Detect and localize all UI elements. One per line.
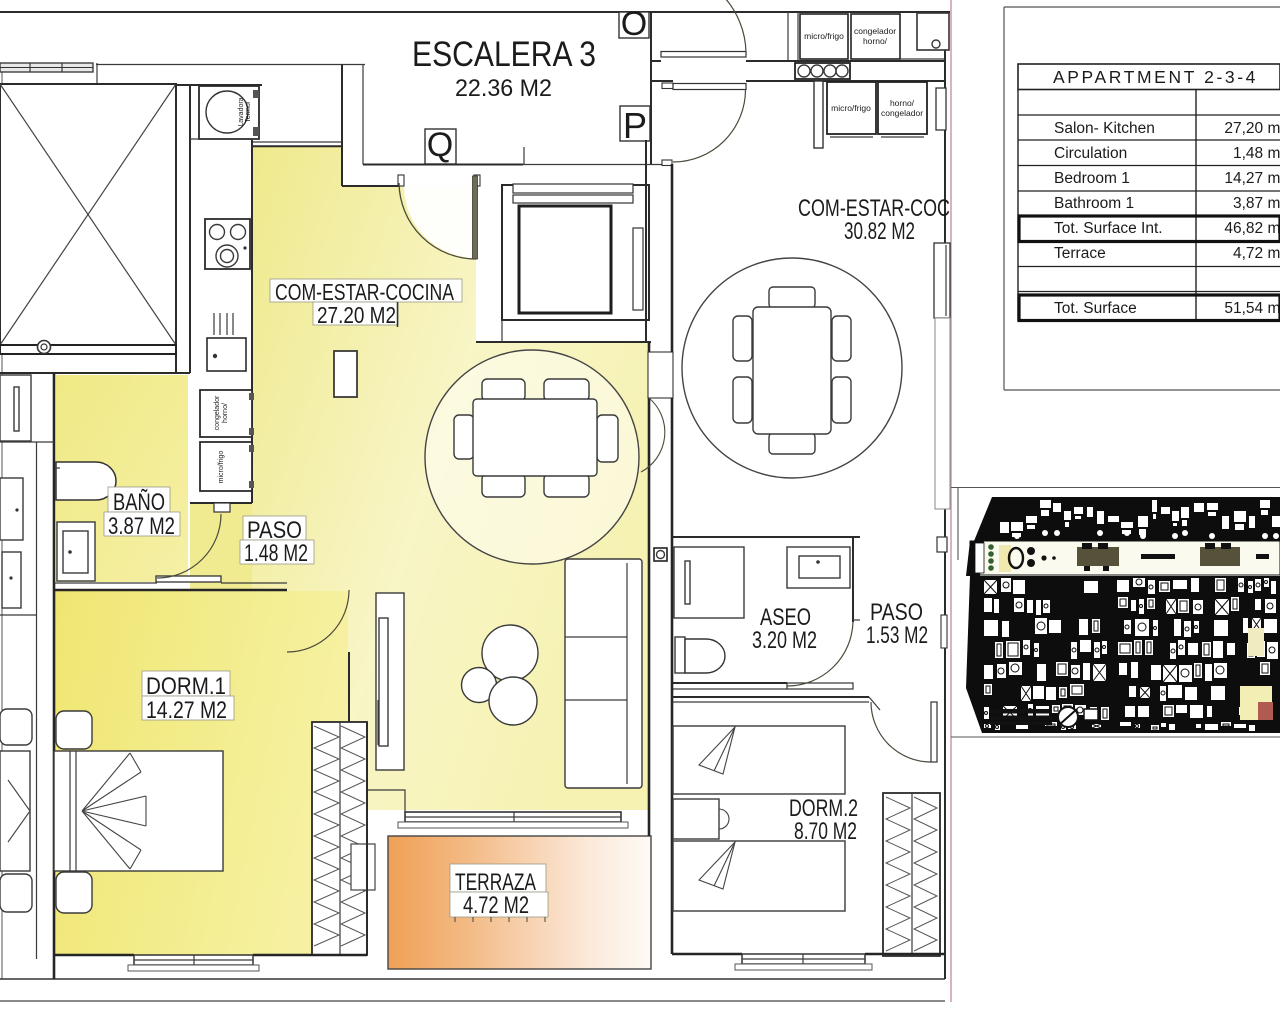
svg-text:8.70 M2: 8.70 M2 [794, 818, 857, 845]
svg-text:Lavadora: Lavadora [238, 97, 245, 126]
svg-text:ESCALERA 3: ESCALERA 3 [412, 35, 596, 74]
svg-text:Terrace: Terrace [1054, 245, 1106, 262]
svg-text:3.20 M2: 3.20 M2 [752, 627, 817, 654]
svg-text:O: O [621, 5, 647, 43]
svg-text:congelador: congelador [881, 108, 923, 118]
svg-text:22.36 M2: 22.36 M2 [455, 75, 552, 102]
svg-text:horno/: horno/ [890, 98, 915, 108]
svg-text:1.48 M2: 1.48 M2 [244, 540, 308, 567]
svg-text:Tot. Surface Int.: Tot. Surface Int. [1054, 220, 1163, 237]
svg-text:27.20 M2: 27.20 M2 [317, 302, 396, 328]
svg-text:congelador: congelador [214, 395, 221, 430]
svg-text:14,27 m2: 14,27 m2 [1224, 170, 1280, 187]
svg-text:14.27 M2: 14.27 M2 [146, 697, 227, 724]
svg-text:1,48 m2: 1,48 m2 [1233, 145, 1280, 162]
svg-text:51,54 m2: 51,54 m2 [1224, 300, 1280, 317]
svg-text:micro/frigo: micro/frigo [804, 31, 844, 41]
svg-text:4.72 M2: 4.72 M2 [463, 892, 529, 919]
svg-text:micro/frigo: micro/frigo [218, 451, 225, 484]
svg-text:congelador: congelador [854, 26, 896, 36]
svg-text:Bedroom 1: Bedroom 1 [1054, 170, 1130, 187]
svg-text:horno/: horno/ [863, 36, 888, 46]
svg-text:27,20 m2: 27,20 m2 [1224, 120, 1280, 137]
svg-text:3.87 M2: 3.87 M2 [108, 513, 175, 540]
svg-text:Q: Q [427, 126, 453, 164]
svg-text:micro/frigo: micro/frigo [831, 103, 871, 113]
svg-text:46,82 m2: 46,82 m2 [1224, 220, 1280, 237]
svg-text:Tot. Surface: Tot. Surface [1054, 300, 1137, 317]
svg-text:horno/: horno/ [222, 403, 229, 423]
svg-text:Termo/: Termo/ [245, 101, 252, 122]
svg-text:Salon- Kitchen: Salon- Kitchen [1054, 120, 1155, 137]
svg-text:4,72 m2: 4,72 m2 [1233, 245, 1280, 262]
svg-text:30.82 M2: 30.82 M2 [844, 218, 915, 245]
svg-text:1.53 M2: 1.53 M2 [866, 622, 928, 649]
svg-text:P: P [623, 105, 647, 146]
svg-text:3,87 m2: 3,87 m2 [1233, 195, 1280, 212]
svg-text:Bathroom 1: Bathroom 1 [1054, 195, 1134, 212]
svg-text:Circulation: Circulation [1054, 145, 1127, 162]
svg-text:APPARTMENT 2-3-4: APPARTMENT 2-3-4 [1053, 67, 1258, 87]
